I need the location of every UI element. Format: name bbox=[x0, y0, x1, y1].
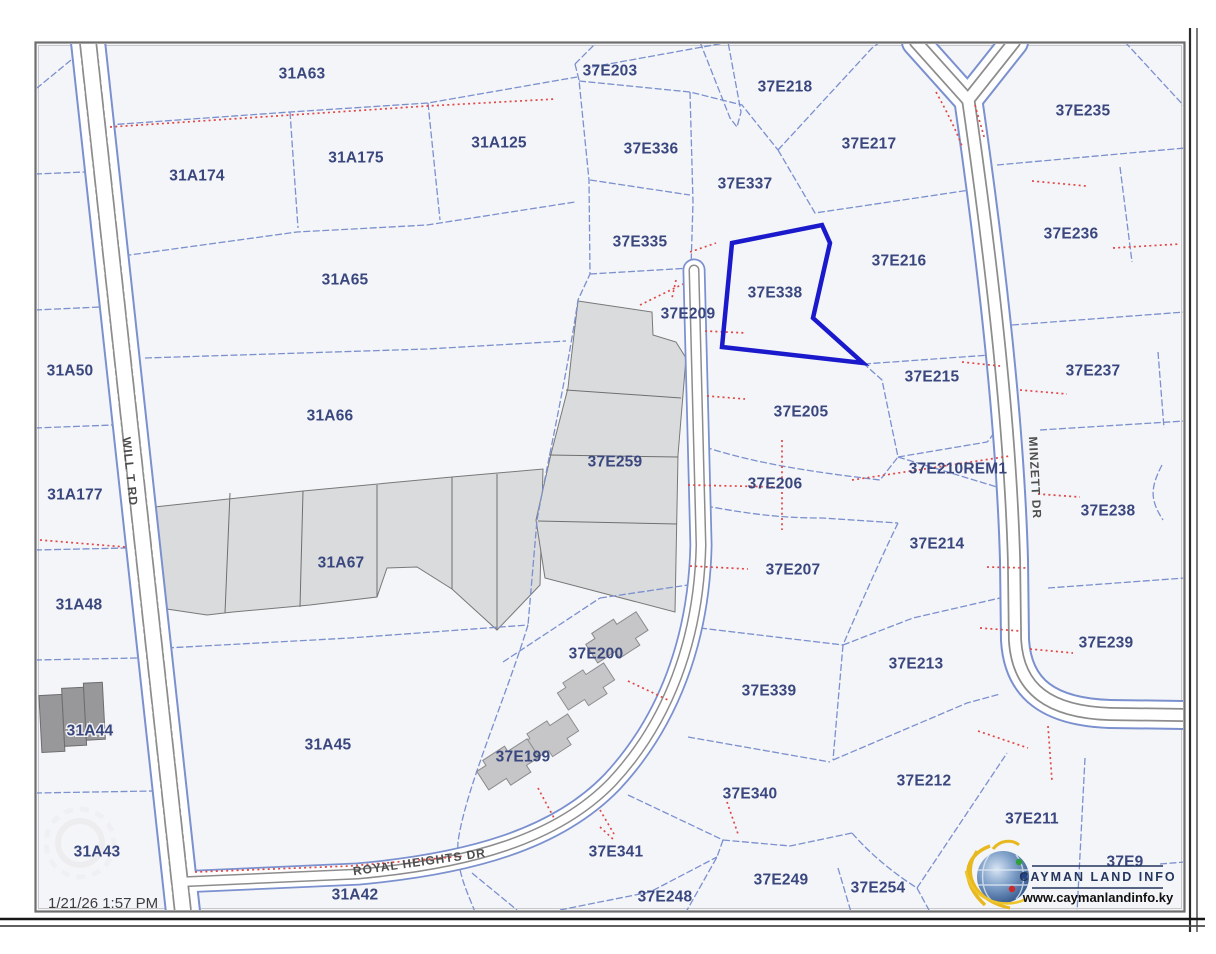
parcel-label: 31A48 bbox=[56, 597, 103, 614]
parcel-label: 37E337 bbox=[718, 176, 773, 193]
parcel-label: 37E207 bbox=[766, 562, 821, 579]
parcel-label: 37E236 bbox=[1044, 226, 1099, 243]
parcel-label: 37E341 bbox=[589, 844, 644, 861]
parcel-label: 37E205 bbox=[774, 404, 829, 421]
timestamp: 1/21/26 1:57 PM bbox=[48, 895, 158, 912]
parcel-label: 37E248 bbox=[638, 889, 693, 906]
parcel-label: 31A44 bbox=[67, 723, 114, 740]
parcel-label: 31A67 bbox=[318, 555, 365, 572]
parcel-label: 37E238 bbox=[1081, 503, 1136, 520]
parcel-label: 37E203 bbox=[583, 63, 638, 80]
parcel-label: 37E239 bbox=[1079, 635, 1134, 652]
parcel-label: 37E235 bbox=[1056, 103, 1111, 120]
parcel-label: 37E335 bbox=[613, 234, 668, 251]
parcel-label: 31A66 bbox=[307, 408, 354, 425]
parcel-label: 31A125 bbox=[471, 135, 527, 152]
parcel-label: 37E206 bbox=[748, 476, 803, 493]
parcel-label: 31A177 bbox=[47, 487, 103, 504]
parcel-label-highlighted: 37E338 bbox=[748, 285, 803, 302]
parcel-label: 37E218 bbox=[758, 79, 813, 96]
parcel-label: 37E211 bbox=[1005, 811, 1059, 828]
parcel-label: 31A43 bbox=[74, 844, 121, 861]
parcel-label: 37E216 bbox=[872, 253, 927, 270]
parcel-label: 37E336 bbox=[624, 141, 679, 158]
parcel-label: 37E209 bbox=[661, 306, 716, 323]
parcel-label: 31A42 bbox=[332, 887, 379, 904]
parcel-label: 37E199 bbox=[496, 749, 551, 766]
map-viewer: WILL T RD MINZETT DR ROYAL HEIGHTS DR 31… bbox=[0, 0, 1216, 954]
parcel-label: 31A50 bbox=[47, 363, 94, 380]
parcel-label: 37E259 bbox=[588, 454, 643, 471]
parcel-label: 37E217 bbox=[842, 136, 897, 153]
parcel-label: 37E215 bbox=[905, 369, 960, 386]
parcel-label: 31A63 bbox=[279, 66, 326, 83]
parcel-label: 37E212 bbox=[897, 773, 952, 790]
parcel-label: 31A175 bbox=[328, 150, 384, 167]
parcel-label: 37E210REM1 bbox=[909, 461, 1008, 478]
parcel-label: 37E249 bbox=[754, 872, 809, 889]
parcel-label: 37E214 bbox=[910, 536, 965, 553]
parcel-label: 37E339 bbox=[742, 683, 797, 700]
parcel-label: 37E340 bbox=[723, 786, 778, 803]
parcel-label: 37E9 bbox=[1107, 854, 1144, 871]
logo-title: CAYMAN LAND INFO bbox=[1019, 870, 1176, 884]
logo-website[interactable]: www.caymanlandinfo.ky bbox=[1022, 890, 1174, 905]
parcel-label: 31A45 bbox=[305, 737, 352, 754]
cadastral-map[interactable]: WILL T RD MINZETT DR ROYAL HEIGHTS DR 31… bbox=[0, 0, 1216, 954]
parcel-label: 37E254 bbox=[851, 880, 906, 897]
parcel-label: 31A65 bbox=[322, 272, 369, 289]
parcel-label: 31A174 bbox=[169, 168, 225, 185]
parcel-label: 37E213 bbox=[889, 656, 944, 673]
parcel-label: 37E237 bbox=[1066, 363, 1121, 380]
parcel-label: 37E200 bbox=[569, 646, 624, 663]
